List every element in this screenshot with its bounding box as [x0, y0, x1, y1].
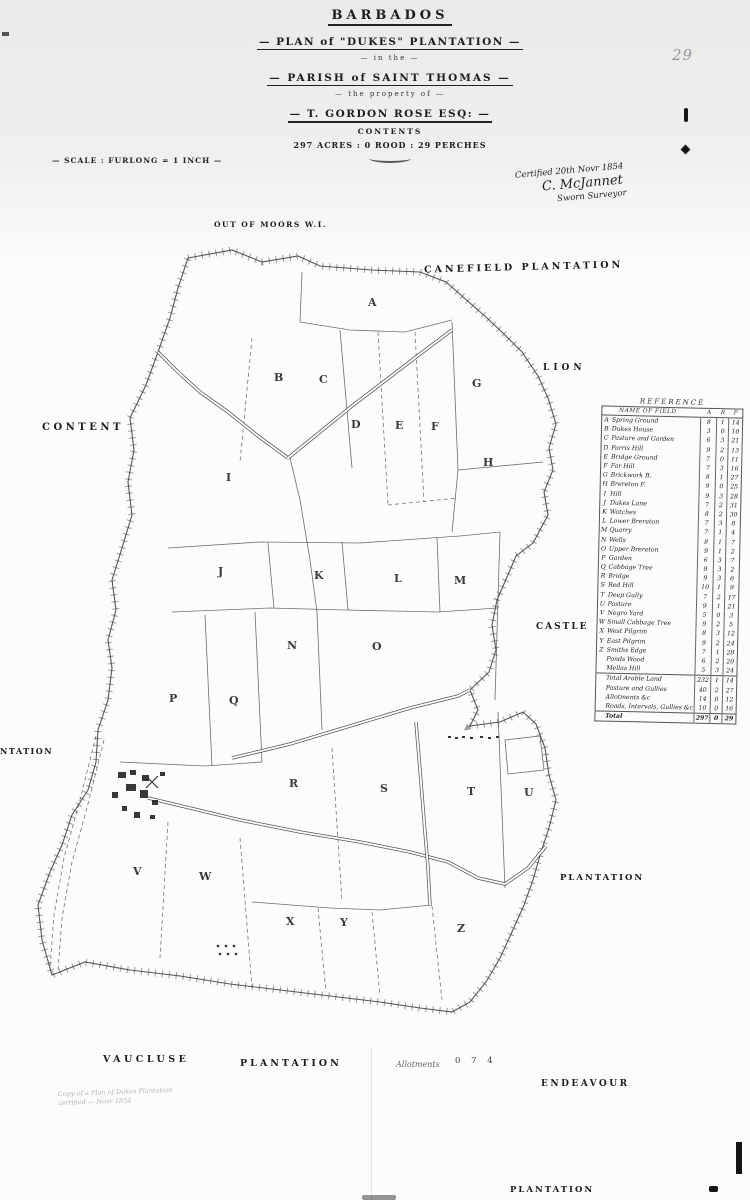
plantation-yard-buildings — [112, 770, 165, 819]
table-cell: 7 — [700, 464, 716, 474]
table-cell: 1 — [713, 583, 725, 592]
parcel-letter: G — [472, 377, 481, 390]
plan-title: — PLAN of "DUKES" PLANTATION — — [257, 36, 523, 50]
flourish-ornament — [369, 154, 411, 163]
edge-mark — [2, 32, 9, 36]
table-cell: 0 — [717, 427, 729, 436]
table-cell: 1 — [716, 473, 728, 482]
parcel-letter: P — [169, 692, 177, 705]
table-cell: T — [598, 590, 607, 599]
table-cell: M — [599, 526, 608, 535]
page-number-mark: 29 — [672, 46, 693, 64]
table-cell: 7 — [725, 556, 739, 566]
acres-column-header: A — [701, 408, 717, 417]
table-cell: P — [598, 553, 607, 562]
roods-column-header: R — [717, 409, 729, 418]
table-cell: I — [600, 489, 609, 498]
table-cell: U — [597, 599, 606, 608]
edge-smudge — [736, 1142, 742, 1174]
table-cell: 2 — [716, 446, 728, 455]
neighbor-castle: CASTLE — [536, 622, 589, 632]
table-cell: 30 — [727, 510, 741, 520]
field-lines — [50, 272, 544, 1000]
parcel-letter: H — [483, 456, 493, 469]
table-cell: 10 — [728, 428, 742, 438]
table-cell: 8 — [700, 473, 716, 483]
allotments-note: Allotments — [396, 1060, 440, 1069]
roads — [148, 330, 546, 905]
table-cell: 16 — [722, 704, 736, 714]
table-cell: 232 — [695, 675, 711, 685]
table-cell: A — [602, 415, 611, 425]
table-cell: 1 — [711, 676, 723, 686]
table-cell: 6 — [695, 657, 711, 667]
table-cell: 28 — [727, 492, 741, 502]
parish-title: — PARISH of SAINT THOMAS — — [267, 72, 513, 86]
owner-title: — T. GORDON ROSE ESQ: — — [288, 108, 493, 123]
table-cell: 0 — [712, 611, 724, 620]
table-cell: C — [601, 434, 610, 443]
parcel-letter: Q — [229, 694, 239, 707]
table-cell: 3 — [713, 565, 725, 574]
table-cell: 8 — [697, 565, 713, 575]
parcel-letter: F — [431, 420, 439, 433]
table-cell: 1 — [712, 648, 724, 657]
table-cell: F — [601, 461, 610, 470]
neighbor-plantation-east: PLANTATION — [560, 873, 644, 883]
table-cell: Total — [604, 711, 694, 723]
parcel-letter: B — [274, 371, 283, 384]
scanned-plantation-plan: ABCDEFGHIJKLMNOPQRSTUVWXYZ BARBADOS — PL… — [0, 0, 750, 1200]
table-cell: 8 — [696, 629, 712, 639]
windmill-icon — [146, 776, 158, 788]
table-cell: 16 — [728, 464, 742, 474]
neighbor-vaucluse: VAUCLUSE — [103, 1054, 189, 1065]
table-cell: 8 — [698, 537, 714, 547]
table-cell: 3 — [714, 556, 726, 565]
table-cell: 2 — [712, 620, 724, 629]
boundary-outline — [38, 250, 556, 1012]
table-cell: K — [599, 507, 608, 516]
table-cell: 5 — [695, 666, 711, 676]
table-cell: 7 — [696, 647, 712, 657]
table-cell: 5 — [724, 620, 738, 630]
table-cell: 7 — [699, 500, 715, 510]
table-cell: V — [597, 608, 606, 617]
table-cell: 0 — [710, 713, 722, 723]
table-cell: N — [599, 535, 608, 544]
parcel-letter: Y — [339, 916, 348, 929]
parcel-letter: V — [132, 865, 142, 878]
table-cell: 6 — [725, 574, 739, 584]
parcel-letter: W — [198, 870, 212, 883]
table-cell: 297 — [694, 713, 710, 724]
title-block: BARBADOS — PLAN of "DUKES" PLANTATION — … — [235, 4, 545, 163]
table-cell: R — [598, 572, 607, 581]
table-cell — [595, 692, 604, 701]
table-cell: 3 — [715, 492, 727, 501]
table-cell: 3 — [701, 427, 717, 437]
parcel-letter: U — [524, 786, 534, 799]
table-cell: 14 — [729, 418, 743, 428]
table-cell: 0 — [710, 704, 722, 714]
table-cell: D — [601, 443, 610, 452]
table-cell: 21 — [728, 437, 742, 447]
table-cell: X — [597, 627, 606, 636]
table-cell: 11 — [728, 455, 742, 465]
parcel-letter: T — [467, 785, 476, 798]
parcel-letter: C — [319, 373, 328, 386]
table-cell — [596, 654, 605, 663]
table-cell: 3 — [716, 436, 728, 445]
table-cell: 1 — [714, 537, 726, 546]
parcel-letter: I — [226, 471, 231, 484]
neighbor-plantation-south: PLANTATION — [240, 1058, 342, 1069]
table-cell: 2 — [726, 547, 740, 557]
country-title: BARBADOS — [328, 8, 453, 26]
table-cell: 0 — [715, 482, 727, 491]
table-cell: 28 — [723, 648, 737, 658]
table-cell: Z — [596, 645, 605, 654]
table-cell: 6 — [700, 436, 716, 446]
bottom-smudge — [362, 1195, 396, 1200]
table-cell: 7 — [697, 592, 713, 602]
table-cell: 9 — [700, 445, 716, 455]
table-cell: 12 — [724, 630, 738, 640]
table-cell: J — [600, 498, 609, 507]
estate-boundary — [38, 250, 556, 1012]
table-cell: G — [600, 471, 609, 480]
table-cell: 9 — [725, 584, 739, 594]
perches-column-header: P — [729, 409, 743, 418]
out-of-moors-label: OUT OF MOORS W.I. — [214, 220, 327, 229]
table-cell: S — [598, 581, 607, 590]
table-cell: 7 — [699, 519, 715, 529]
neighbor-content: CONTENT — [42, 422, 124, 433]
table-cell: Y — [597, 636, 606, 645]
scale-note: — SCALE : FURLONG = 1 INCH — — [52, 156, 222, 165]
table-cell: Q — [598, 562, 607, 571]
table-cell: 9 — [696, 638, 712, 648]
table-cell: 10 — [694, 703, 710, 713]
table-cell: 3 — [711, 666, 723, 676]
table-cell: 8 — [701, 417, 717, 427]
table-cell — [596, 663, 605, 673]
allotments-numbers: 0 7 4 — [455, 1056, 497, 1066]
table-cell: E — [601, 452, 610, 461]
table-cell: 2 — [715, 501, 727, 510]
parcel-letter: Z — [457, 922, 465, 935]
acreage-text: 297 ACRES : 0 ROOD : 29 PERCHES — [235, 140, 545, 150]
table-cell: 1 — [717, 418, 729, 428]
table-cell: 9 — [699, 482, 715, 492]
table-cell: 3 — [724, 611, 738, 621]
in-the-text: — in the — — [235, 54, 545, 62]
parcel-letter: S — [380, 782, 388, 795]
table-cell: 24 — [723, 666, 737, 676]
table-cell: 2 — [711, 657, 723, 666]
table-cell: 2 — [711, 685, 723, 694]
reference-table: REFERENCE NAME OF FIELD A R P ASpring Gr… — [594, 396, 743, 724]
table-cell: 9 — [698, 546, 714, 556]
table-cell: 1 — [714, 547, 726, 556]
table-cell — [595, 701, 604, 711]
table-cell: 24 — [724, 639, 738, 649]
neighbor-plantation-west-partial: NTATION — [0, 746, 53, 756]
table-cell: 27 — [727, 473, 741, 483]
table-cell: 7 — [700, 454, 716, 464]
table-cell: 4 — [726, 529, 740, 539]
parcel-letter: O — [372, 640, 382, 653]
table-cell: 7 — [698, 528, 714, 538]
table-cell: 0 — [716, 455, 728, 464]
parcel-letter: A — [367, 296, 377, 309]
table-cell: 9 — [697, 601, 713, 611]
table-cell: 10 — [697, 583, 713, 593]
parcel-letter: N — [287, 639, 297, 652]
table-cell: 3 — [714, 519, 726, 528]
table-cell: 13 — [728, 446, 742, 456]
table-cell: L — [599, 516, 608, 525]
table-cell: 17 — [725, 593, 739, 603]
table-cell: O — [599, 544, 608, 553]
table-cell: 5 — [696, 611, 712, 621]
table-cell: 6 — [698, 555, 714, 565]
table-cell — [596, 673, 605, 683]
table-cell: 14 — [723, 676, 737, 686]
parcel-letter: D — [351, 418, 361, 431]
table-cell: 9 — [699, 491, 715, 501]
table-cell: 14 — [695, 694, 711, 704]
table-cell: 9 — [696, 620, 712, 630]
table-cell — [595, 711, 604, 721]
table-cell: 3 — [712, 629, 724, 638]
ink-blot — [684, 108, 688, 122]
table-cell: W — [597, 618, 606, 627]
table-cell: 25 — [727, 483, 741, 493]
table-cell: 21 — [724, 602, 738, 612]
parcel-letter: L — [394, 572, 402, 585]
table-cell: 0 — [710, 695, 722, 704]
table-cell — [596, 683, 605, 692]
neighbor-endeavour: ENDEAVOUR — [541, 1079, 630, 1089]
table-cell: 1 — [714, 528, 726, 537]
table-cell: 27 — [723, 686, 737, 696]
table-cell: 3 — [713, 574, 725, 583]
neighbor-plantation-southeast: PLANTATION — [510, 1185, 594, 1195]
neighbor-lion: LION — [543, 363, 586, 373]
table-cell: 3 — [716, 464, 728, 473]
table-cell: 8 — [699, 510, 715, 520]
reference-table-body: ASpring Ground8114BDukes House3010CPastu… — [595, 415, 743, 724]
table-cell: 12 — [722, 695, 736, 705]
table-cell: 2 — [725, 565, 739, 575]
table-cell: 40 — [695, 685, 711, 695]
table-cell: H — [600, 480, 609, 489]
table-cell: 2 — [712, 638, 724, 647]
table-cell: 2 — [713, 593, 725, 602]
parcel-letter: K — [314, 569, 324, 582]
parcel-letter: M — [454, 574, 466, 587]
table-cell: 31 — [727, 501, 741, 511]
property-of-text: — the property of — — [235, 90, 545, 98]
table-cell: 7 — [726, 538, 740, 548]
table-cell: 2 — [715, 510, 727, 519]
table-cell: 8 — [726, 519, 740, 529]
parcel-letter: J — [217, 565, 223, 578]
paper-crease — [371, 1048, 372, 1200]
table-cell: 20 — [723, 657, 737, 667]
parcel-letter: X — [286, 915, 295, 928]
table-cell: 1 — [713, 602, 725, 611]
key-column-header — [602, 406, 611, 415]
parcel-letter: E — [395, 419, 403, 432]
corner-smudge — [709, 1186, 718, 1192]
table-cell: 9 — [697, 574, 713, 584]
table-cell: B — [601, 425, 610, 434]
table-cell: 29 — [722, 714, 736, 725]
parcel-letter: R — [289, 777, 299, 790]
contents-label: CONTENTS — [235, 127, 545, 136]
boundary-hatch-ticks — [38, 250, 556, 1012]
